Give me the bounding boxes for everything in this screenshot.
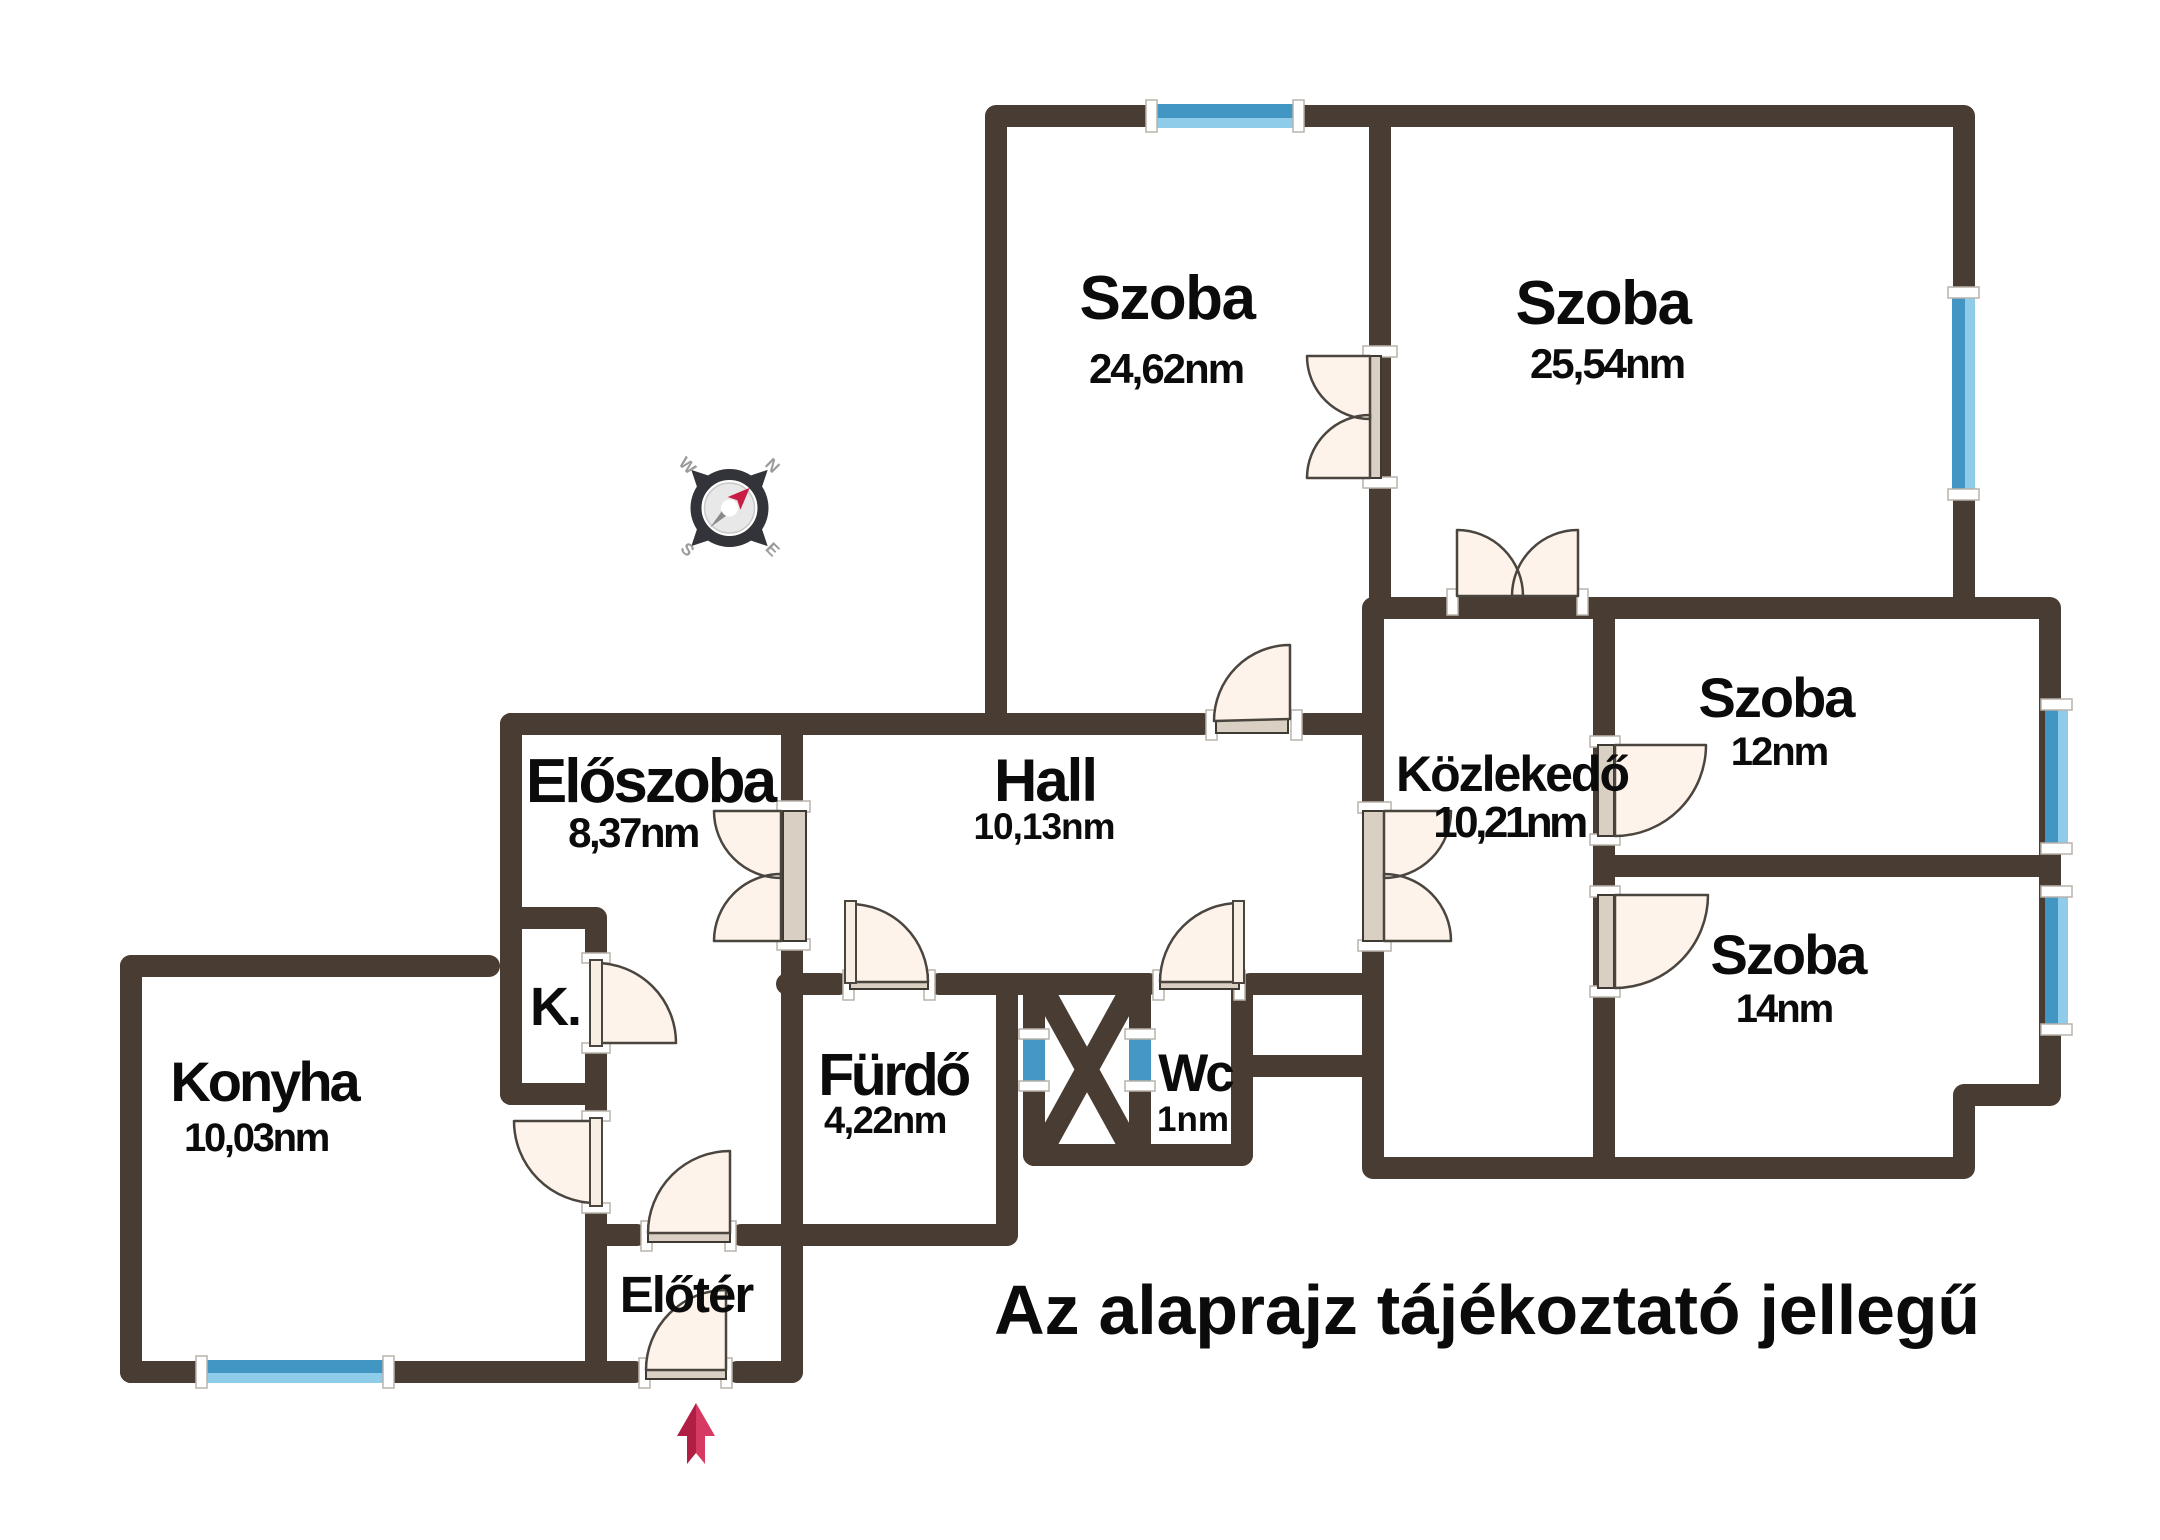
- svg-text:12nm: 12nm: [1731, 730, 1828, 774]
- svg-text:Szoba: Szoba: [1079, 264, 1256, 333]
- svg-text:25,54nm: 25,54nm: [1530, 340, 1684, 387]
- svg-text:Hall: Hall: [994, 747, 1096, 814]
- svg-text:10,13nm: 10,13nm: [973, 806, 1114, 847]
- svg-text:10,03nm: 10,03nm: [184, 1116, 329, 1160]
- svg-text:Szoba: Szoba: [1711, 923, 1869, 986]
- svg-text:Wc: Wc: [1158, 1044, 1233, 1103]
- svg-text:Előszoba: Előszoba: [526, 747, 778, 816]
- svg-text:14nm: 14nm: [1736, 987, 1833, 1031]
- svg-text:Az alaprajz tájékoztató jelleg: Az alaprajz tájékoztató jellegű: [994, 1271, 1980, 1349]
- svg-text:K.: K.: [530, 977, 580, 1037]
- svg-text:Szoba: Szoba: [1699, 666, 1857, 729]
- svg-text:10,21nm: 10,21nm: [1433, 798, 1586, 847]
- svg-text:Konyha: Konyha: [170, 1050, 361, 1113]
- svg-text:24,62nm: 24,62nm: [1089, 345, 1243, 392]
- svg-text:Fürdő: Fürdő: [818, 1042, 969, 1108]
- svg-text:Előtér: Előtér: [620, 1266, 755, 1323]
- svg-text:8,37nm: 8,37nm: [568, 809, 698, 856]
- svg-text:4,22nm: 4,22nm: [824, 1100, 946, 1142]
- svg-text:Közlekedő: Közlekedő: [1396, 746, 1629, 802]
- svg-text:Szoba: Szoba: [1515, 269, 1692, 338]
- svg-text:1nm: 1nm: [1157, 1100, 1229, 1139]
